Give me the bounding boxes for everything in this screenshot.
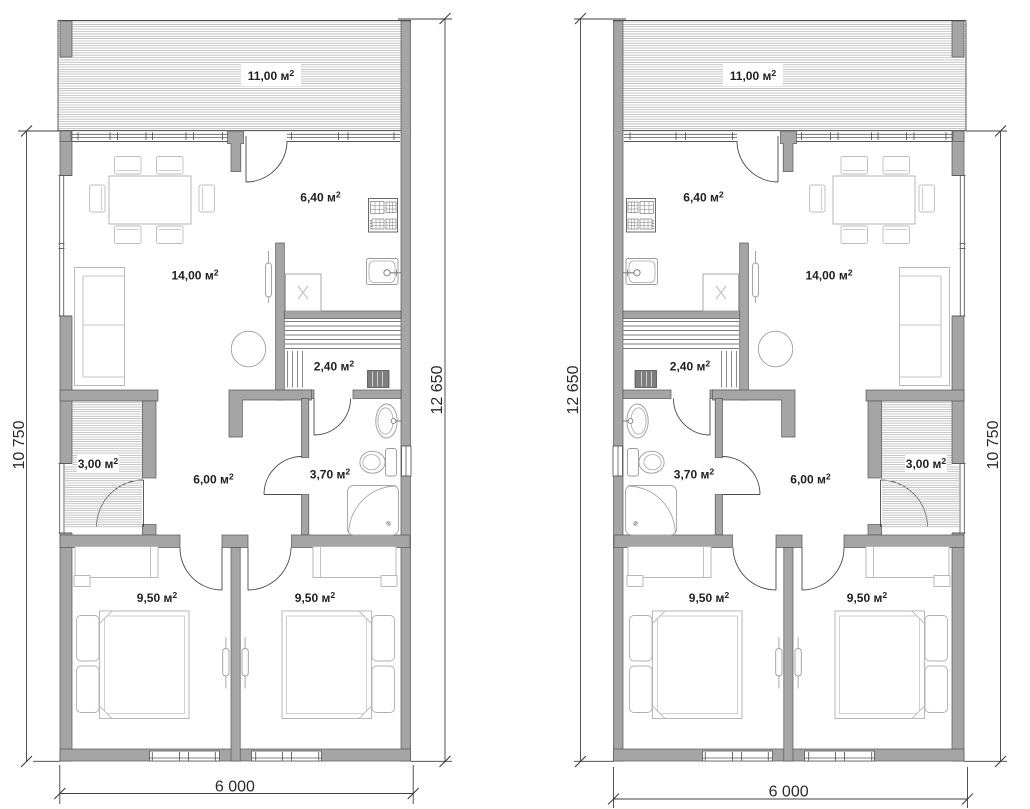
svg-text:10 750: 10 750: [985, 420, 1002, 469]
svg-text:6,40 м2: 6,40 м2: [300, 189, 341, 204]
svg-text:9,50 м2: 9,50 м2: [847, 590, 888, 605]
svg-text:3,00 м2: 3,00 м2: [906, 456, 947, 471]
svg-text:9,50 м2: 9,50 м2: [689, 590, 730, 605]
svg-text:9,50 м2: 9,50 м2: [295, 590, 336, 605]
svg-text:2,40 м2: 2,40 м2: [314, 358, 355, 373]
svg-text:3,00 м2: 3,00 м2: [78, 456, 119, 471]
svg-text:3,70 м2: 3,70 м2: [310, 466, 351, 481]
svg-text:6,00 м2: 6,00 м2: [193, 471, 234, 486]
svg-text:12 650: 12 650: [565, 365, 582, 414]
svg-text:10 750: 10 750: [11, 420, 28, 469]
svg-text:12 650: 12 650: [429, 365, 446, 414]
svg-text:14,00 м2: 14,00 м2: [171, 267, 218, 282]
svg-text:6 000: 6 000: [769, 784, 809, 801]
svg-text:2,40 м2: 2,40 м2: [670, 358, 711, 373]
svg-text:6,40 м2: 6,40 м2: [683, 189, 724, 204]
svg-text:11,00 м2: 11,00 м2: [730, 68, 777, 83]
svg-text:9,50 м2: 9,50 м2: [137, 590, 178, 605]
svg-text:14,00 м2: 14,00 м2: [805, 267, 852, 282]
svg-text:3,70 м2: 3,70 м2: [674, 466, 715, 481]
svg-text:11,00 м2: 11,00 м2: [248, 68, 295, 83]
svg-text:6 000: 6 000: [215, 779, 255, 796]
svg-text:6,00 м2: 6,00 м2: [790, 471, 831, 486]
